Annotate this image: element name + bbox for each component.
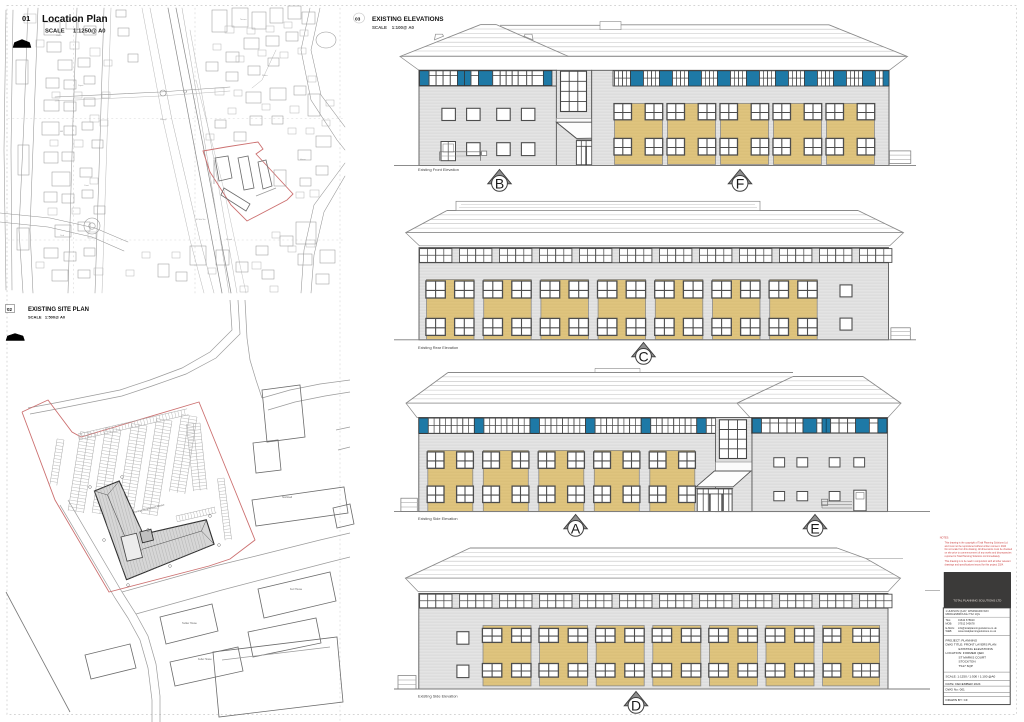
- svg-text:SCALE 1:500@ A0: SCALE 1:500@ A0: [28, 315, 66, 320]
- svg-text:Existing Side Elevation: Existing Side Elevation: [418, 693, 458, 698]
- svg-text:Keller House: Keller House: [198, 658, 212, 661]
- svg-text:B: B: [495, 176, 504, 192]
- svg-text:House: House: [300, 159, 307, 161]
- svg-text:Yard: Yard: [60, 235, 64, 237]
- svg-text:SCALE 1:100@ A0: SCALE 1:100@ A0: [372, 25, 414, 30]
- svg-text:Terrace: Terrace: [240, 19, 248, 21]
- svg-text:Stockwell: Stockwell: [282, 496, 293, 499]
- svg-text:School: School: [226, 239, 233, 241]
- svg-text:Depot: Depot: [78, 84, 84, 87]
- svg-text:07912 345678: 07912 345678: [958, 621, 975, 625]
- svg-text:DRAWN BY: CF: DRAWN BY: CF: [946, 698, 968, 702]
- svg-text:NOTES:: NOTES:: [940, 537, 950, 540]
- svg-text:1:1250@ A0: 1:1250@ A0: [73, 29, 106, 35]
- svg-text:Location Plan: Location Plan: [42, 14, 108, 25]
- svg-text:SCALE: 1:1250 / 1:500 / 1:100: SCALE: 1:1250 / 1:500 / 1:100 @A0: [946, 674, 996, 678]
- svg-text:F: F: [736, 176, 745, 192]
- svg-text:D: D: [631, 698, 641, 714]
- svg-text:WEB:: WEB:: [946, 629, 953, 633]
- svg-text:Existing Side Elevation: Existing Side Elevation: [418, 516, 458, 521]
- svg-text:Works: Works: [56, 35, 62, 37]
- svg-text:01: 01: [22, 14, 30, 23]
- svg-text:SCALE: SCALE: [45, 29, 65, 35]
- svg-text:EXISTING ELEVATIONS: EXISTING ELEVATIONS: [372, 16, 444, 23]
- svg-text:This drawing is to be read in: This drawing is to be read in conjunctio…: [945, 560, 1011, 563]
- svg-text:Kerr House: Kerr House: [290, 588, 303, 591]
- svg-text:DWG No: 001: DWG No: 001: [946, 688, 966, 692]
- svg-text:02: 02: [7, 307, 13, 312]
- svg-text:C: C: [638, 349, 648, 365]
- svg-text:Existing Rear Elevation: Existing Rear Elevation: [418, 345, 458, 350]
- svg-text:E: E: [810, 521, 819, 537]
- svg-text:Sidings: Sidings: [160, 119, 167, 121]
- svg-text:Court: Court: [84, 184, 89, 187]
- svg-text:EXISTING SITE PLAN: EXISTING SITE PLAN: [28, 307, 89, 313]
- svg-text:www.totalplanningsolutions.co.: www.totalplanningsolutions.co.uk: [958, 629, 997, 633]
- svg-text:A: A: [571, 521, 581, 537]
- svg-text:MIDDLESBROUGH TS2 1QG: MIDDLESBROUGH TS2 1QG: [946, 612, 981, 616]
- svg-text:Existing Front Elevation: Existing Front Elevation: [418, 167, 459, 172]
- svg-text:El Sub Sta: El Sub Sta: [196, 218, 206, 221]
- svg-text:Works: Works: [262, 75, 268, 77]
- svg-text:TOTAL PLANNING SOLUTIONS LTD: TOTAL PLANNING SOLUTIONS LTD: [953, 598, 1001, 602]
- svg-text:TS17 6QP: TS17 6QP: [959, 664, 973, 668]
- svg-text:MOB:: MOB:: [946, 621, 953, 625]
- svg-text:drawings and specifications is: drawings and specifications issued for t…: [945, 564, 1004, 567]
- svg-text:reported to Total Planning Sol: reported to Total Planning Solutions Ltd…: [945, 555, 1001, 558]
- svg-text:DATE: DECEMBER 2024: DATE: DECEMBER 2024: [946, 682, 981, 686]
- svg-text:03: 03: [355, 17, 361, 23]
- svg-text:Tedder House: Tedder House: [182, 622, 198, 625]
